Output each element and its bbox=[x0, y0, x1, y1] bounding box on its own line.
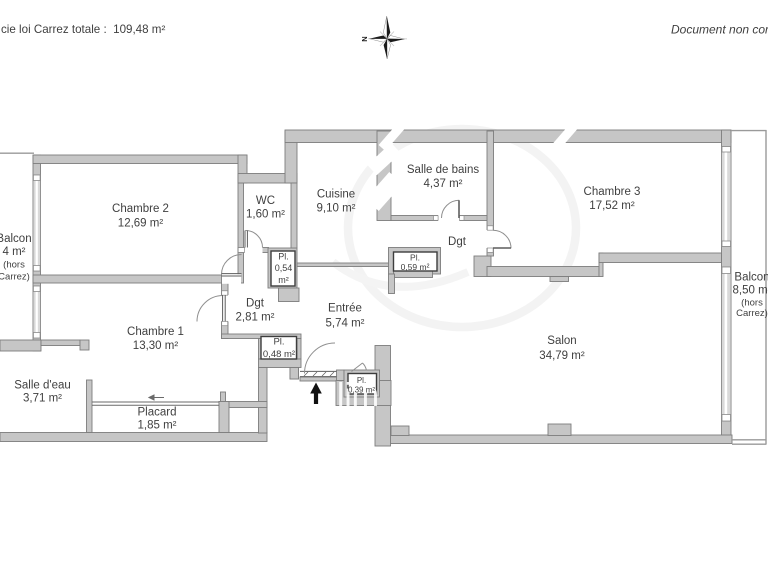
svg-text:Dgt: Dgt bbox=[246, 298, 265, 310]
svg-text:0,59 m²: 0,59 m² bbox=[401, 262, 430, 272]
svg-text:0,54: 0,54 bbox=[275, 263, 293, 273]
svg-text:m²: m² bbox=[278, 275, 289, 285]
svg-text:1,60 m²: 1,60 m² bbox=[246, 209, 285, 221]
svg-text:Chambre 2: Chambre 2 bbox=[112, 203, 169, 215]
svg-text:Balcon: Balcon bbox=[734, 272, 768, 284]
svg-text:Salle d'eau: Salle d'eau bbox=[14, 380, 71, 392]
svg-text:Document non contractuel: Document non contractuel bbox=[671, 23, 768, 37]
svg-text:(hors: (hors bbox=[741, 298, 763, 309]
svg-text:1,85 m²: 1,85 m² bbox=[138, 420, 177, 432]
svg-text:Cuisine: Cuisine bbox=[317, 189, 355, 201]
svg-text:34,79 m²: 34,79 m² bbox=[539, 350, 585, 362]
svg-text:2,81 m²: 2,81 m² bbox=[236, 312, 275, 324]
svg-text:4 m²: 4 m² bbox=[3, 246, 26, 258]
svg-text:Pl.: Pl. bbox=[278, 252, 289, 262]
svg-text:3,71 m²: 3,71 m² bbox=[23, 393, 62, 405]
svg-text:4,37 m²: 4,37 m² bbox=[424, 178, 463, 190]
svg-text:Placard: Placard bbox=[138, 407, 177, 419]
svg-text:Chambre 3: Chambre 3 bbox=[584, 186, 641, 198]
svg-text:Salle de bains: Salle de bains bbox=[407, 164, 479, 176]
svg-text:Pl.: Pl. bbox=[273, 337, 284, 348]
svg-text:8,50 m²: 8,50 m² bbox=[733, 285, 768, 297]
svg-text:cie loi Carrez totale : 109,4: cie loi Carrez totale : 109,48 m² bbox=[1, 23, 165, 36]
svg-text:Entrée: Entrée bbox=[328, 303, 362, 315]
svg-text:0,39 m²: 0,39 m² bbox=[348, 386, 375, 395]
svg-text:Salon: Salon bbox=[547, 335, 576, 347]
svg-text:9,10 m²: 9,10 m² bbox=[317, 203, 356, 215]
svg-text:17,52 m²: 17,52 m² bbox=[589, 200, 635, 212]
svg-text:5,74 m²: 5,74 m² bbox=[326, 318, 365, 330]
svg-text:13,30 m²: 13,30 m² bbox=[133, 340, 179, 352]
svg-text:(hors: (hors bbox=[3, 260, 25, 271]
svg-text:Chambre 1: Chambre 1 bbox=[127, 326, 184, 338]
svg-text:N: N bbox=[360, 36, 369, 41]
svg-text:WC: WC bbox=[256, 195, 275, 207]
svg-text:Pl.: Pl. bbox=[357, 376, 366, 385]
svg-text:Carrez): Carrez) bbox=[736, 308, 768, 319]
svg-text:12,69 m²: 12,69 m² bbox=[118, 218, 164, 230]
svg-text:Balcon: Balcon bbox=[0, 233, 32, 245]
svg-text:Dgt: Dgt bbox=[448, 236, 467, 248]
svg-text:0,48 m²: 0,48 m² bbox=[263, 349, 295, 360]
svg-text:Carrez): Carrez) bbox=[0, 272, 30, 283]
